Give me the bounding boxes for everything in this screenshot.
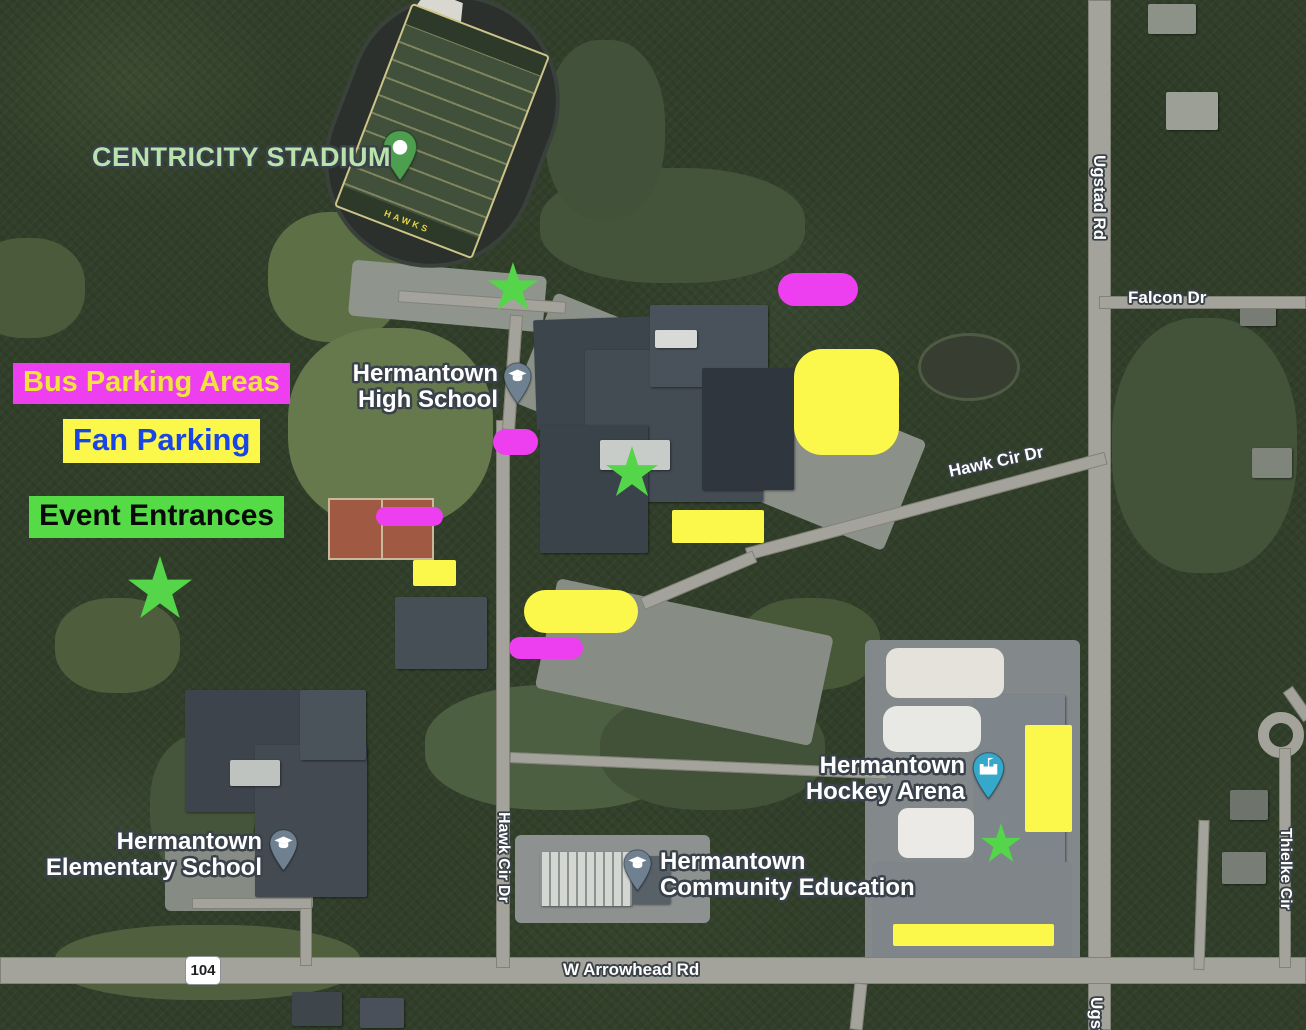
elementary-roof-section bbox=[230, 760, 280, 786]
bus-parking-area bbox=[509, 637, 583, 659]
fan-parking-area bbox=[893, 924, 1054, 946]
pond bbox=[918, 333, 1020, 401]
house bbox=[1230, 790, 1268, 820]
elementary-pin[interactable] bbox=[268, 828, 299, 878]
grass-patch bbox=[0, 238, 85, 338]
elementary-label-line2: Elementary School bbox=[30, 855, 262, 881]
road-label-ugstad: Ugstad Rd bbox=[1089, 155, 1109, 240]
elementary-label: Hermantown Elementary School bbox=[30, 829, 262, 881]
house bbox=[1222, 852, 1266, 884]
fan-parking-area bbox=[413, 560, 456, 586]
legend-fan-parking: Fan Parking bbox=[63, 419, 260, 463]
high-school-roof-section bbox=[655, 330, 697, 348]
bus-parking-area bbox=[493, 429, 538, 455]
grass-patch bbox=[55, 598, 180, 693]
route-104-badge: 104 bbox=[185, 956, 221, 985]
map-canvas[interactable]: HAWKS Ug bbox=[0, 0, 1306, 1030]
arena-gravel-pad bbox=[883, 706, 981, 752]
arena-gravel-pad bbox=[886, 648, 1004, 698]
legend-bus-parking: Bus Parking Areas bbox=[13, 363, 290, 404]
bus-parking-area bbox=[376, 507, 443, 526]
elementary-label-line1: Hermantown bbox=[30, 829, 262, 855]
hockey-arena-pin[interactable] bbox=[971, 750, 1006, 807]
road-label-hawk-lower: Hawk Cir Dr bbox=[494, 812, 512, 903]
community-ed-label-line2: Community Education bbox=[660, 875, 915, 901]
house bbox=[1166, 92, 1218, 130]
elementary-building bbox=[300, 690, 366, 760]
high-school-label-line2: High School bbox=[330, 387, 498, 413]
grass-patch bbox=[1112, 318, 1297, 573]
fan-parking-area bbox=[794, 349, 899, 455]
road-label-thielke: Thielke Cir bbox=[1276, 828, 1294, 910]
high-school-building bbox=[702, 368, 794, 490]
hockey-arena-label-line1: Hermantown bbox=[780, 753, 965, 779]
community-ed-pin[interactable] bbox=[622, 848, 653, 898]
fan-parking-area bbox=[672, 510, 764, 543]
hockey-arena-label-line2: Hockey Arena bbox=[780, 779, 965, 805]
house bbox=[1252, 448, 1292, 478]
hockey-arena-label: Hermantown Hockey Arena bbox=[780, 753, 965, 805]
house bbox=[292, 992, 342, 1026]
fan-parking-area bbox=[1025, 725, 1072, 832]
road-label-falcon: Falcon Dr bbox=[1128, 288, 1206, 308]
road-side-drive bbox=[1193, 820, 1209, 970]
high-school-pin[interactable] bbox=[502, 361, 533, 411]
high-school-label-line1: Hermantown bbox=[330, 361, 498, 387]
road-label-ugstad-bottom: Ugstad Rd bbox=[1086, 997, 1106, 1030]
stadium-label: CENTRICITY STADIUM bbox=[92, 143, 391, 172]
community-ed-building bbox=[540, 852, 632, 906]
house bbox=[1148, 4, 1196, 34]
legend-event-entrances: Event Entrances bbox=[29, 496, 284, 538]
road-south-stub bbox=[850, 982, 868, 1030]
fan-parking-area bbox=[524, 590, 638, 633]
community-ed-label-line1: Hermantown bbox=[660, 849, 915, 875]
house bbox=[360, 998, 404, 1028]
school-outbuilding bbox=[395, 597, 487, 669]
high-school-label: Hermantown High School bbox=[330, 361, 498, 413]
road-label-arrowhead: W Arrowhead Rd bbox=[563, 960, 699, 980]
road-hawk-upper bbox=[640, 550, 757, 610]
bus-parking-area bbox=[778, 273, 858, 306]
road-elementary-drive bbox=[192, 898, 312, 909]
community-ed-label: Hermantown Community Education bbox=[660, 849, 915, 901]
